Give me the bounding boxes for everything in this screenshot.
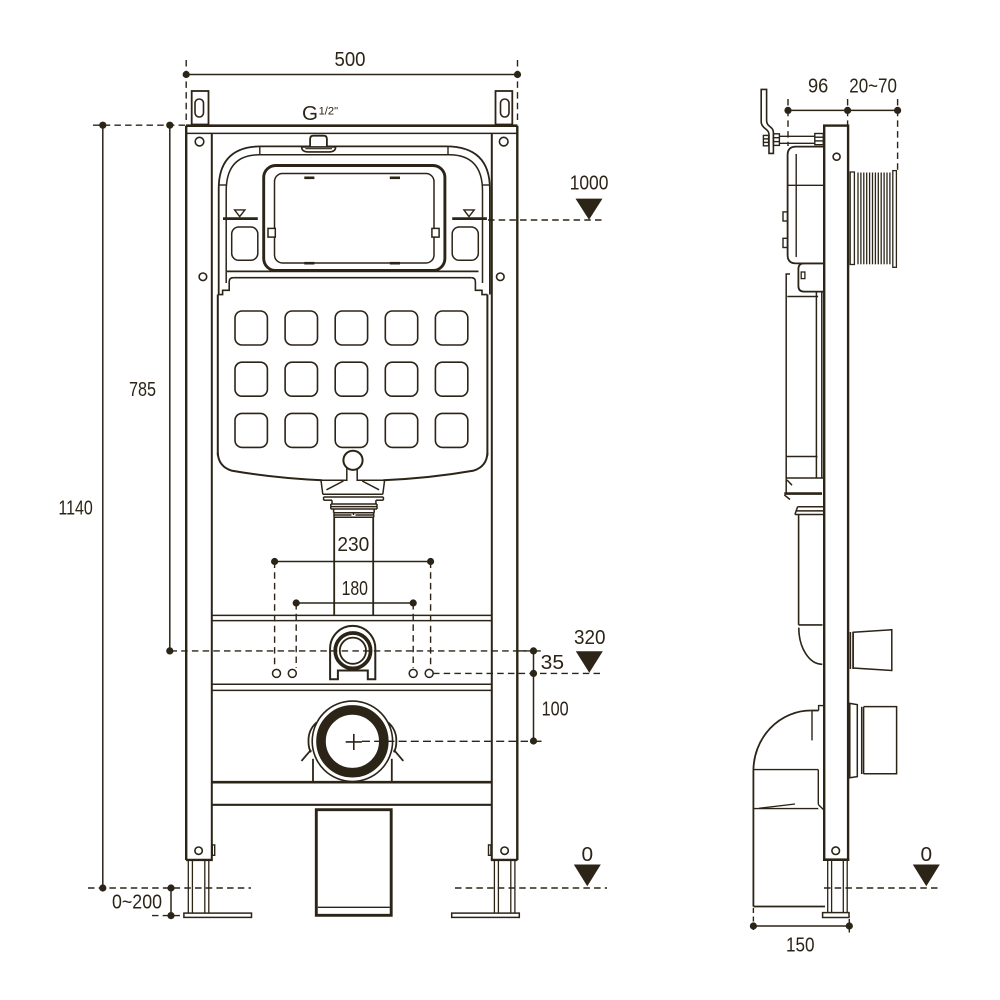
svg-text:150: 150	[786, 933, 815, 956]
svg-text:785: 785	[129, 378, 156, 401]
svg-text:1/2": 1/2"	[319, 106, 339, 118]
svg-text:0: 0	[582, 843, 594, 866]
svg-text:500: 500	[335, 48, 366, 71]
svg-text:100: 100	[542, 698, 569, 721]
svg-text:35: 35	[541, 651, 564, 674]
svg-text:0: 0	[921, 843, 933, 866]
svg-text:G: G	[302, 102, 318, 125]
svg-text:320: 320	[574, 626, 606, 649]
svg-text:230: 230	[337, 533, 369, 556]
svg-text:20~70: 20~70	[849, 75, 897, 98]
svg-text:0~200: 0~200	[112, 891, 162, 914]
svg-text:96: 96	[808, 75, 828, 98]
svg-text:1000: 1000	[570, 171, 609, 194]
svg-text:1140: 1140	[58, 496, 92, 519]
svg-text:180: 180	[342, 577, 368, 600]
